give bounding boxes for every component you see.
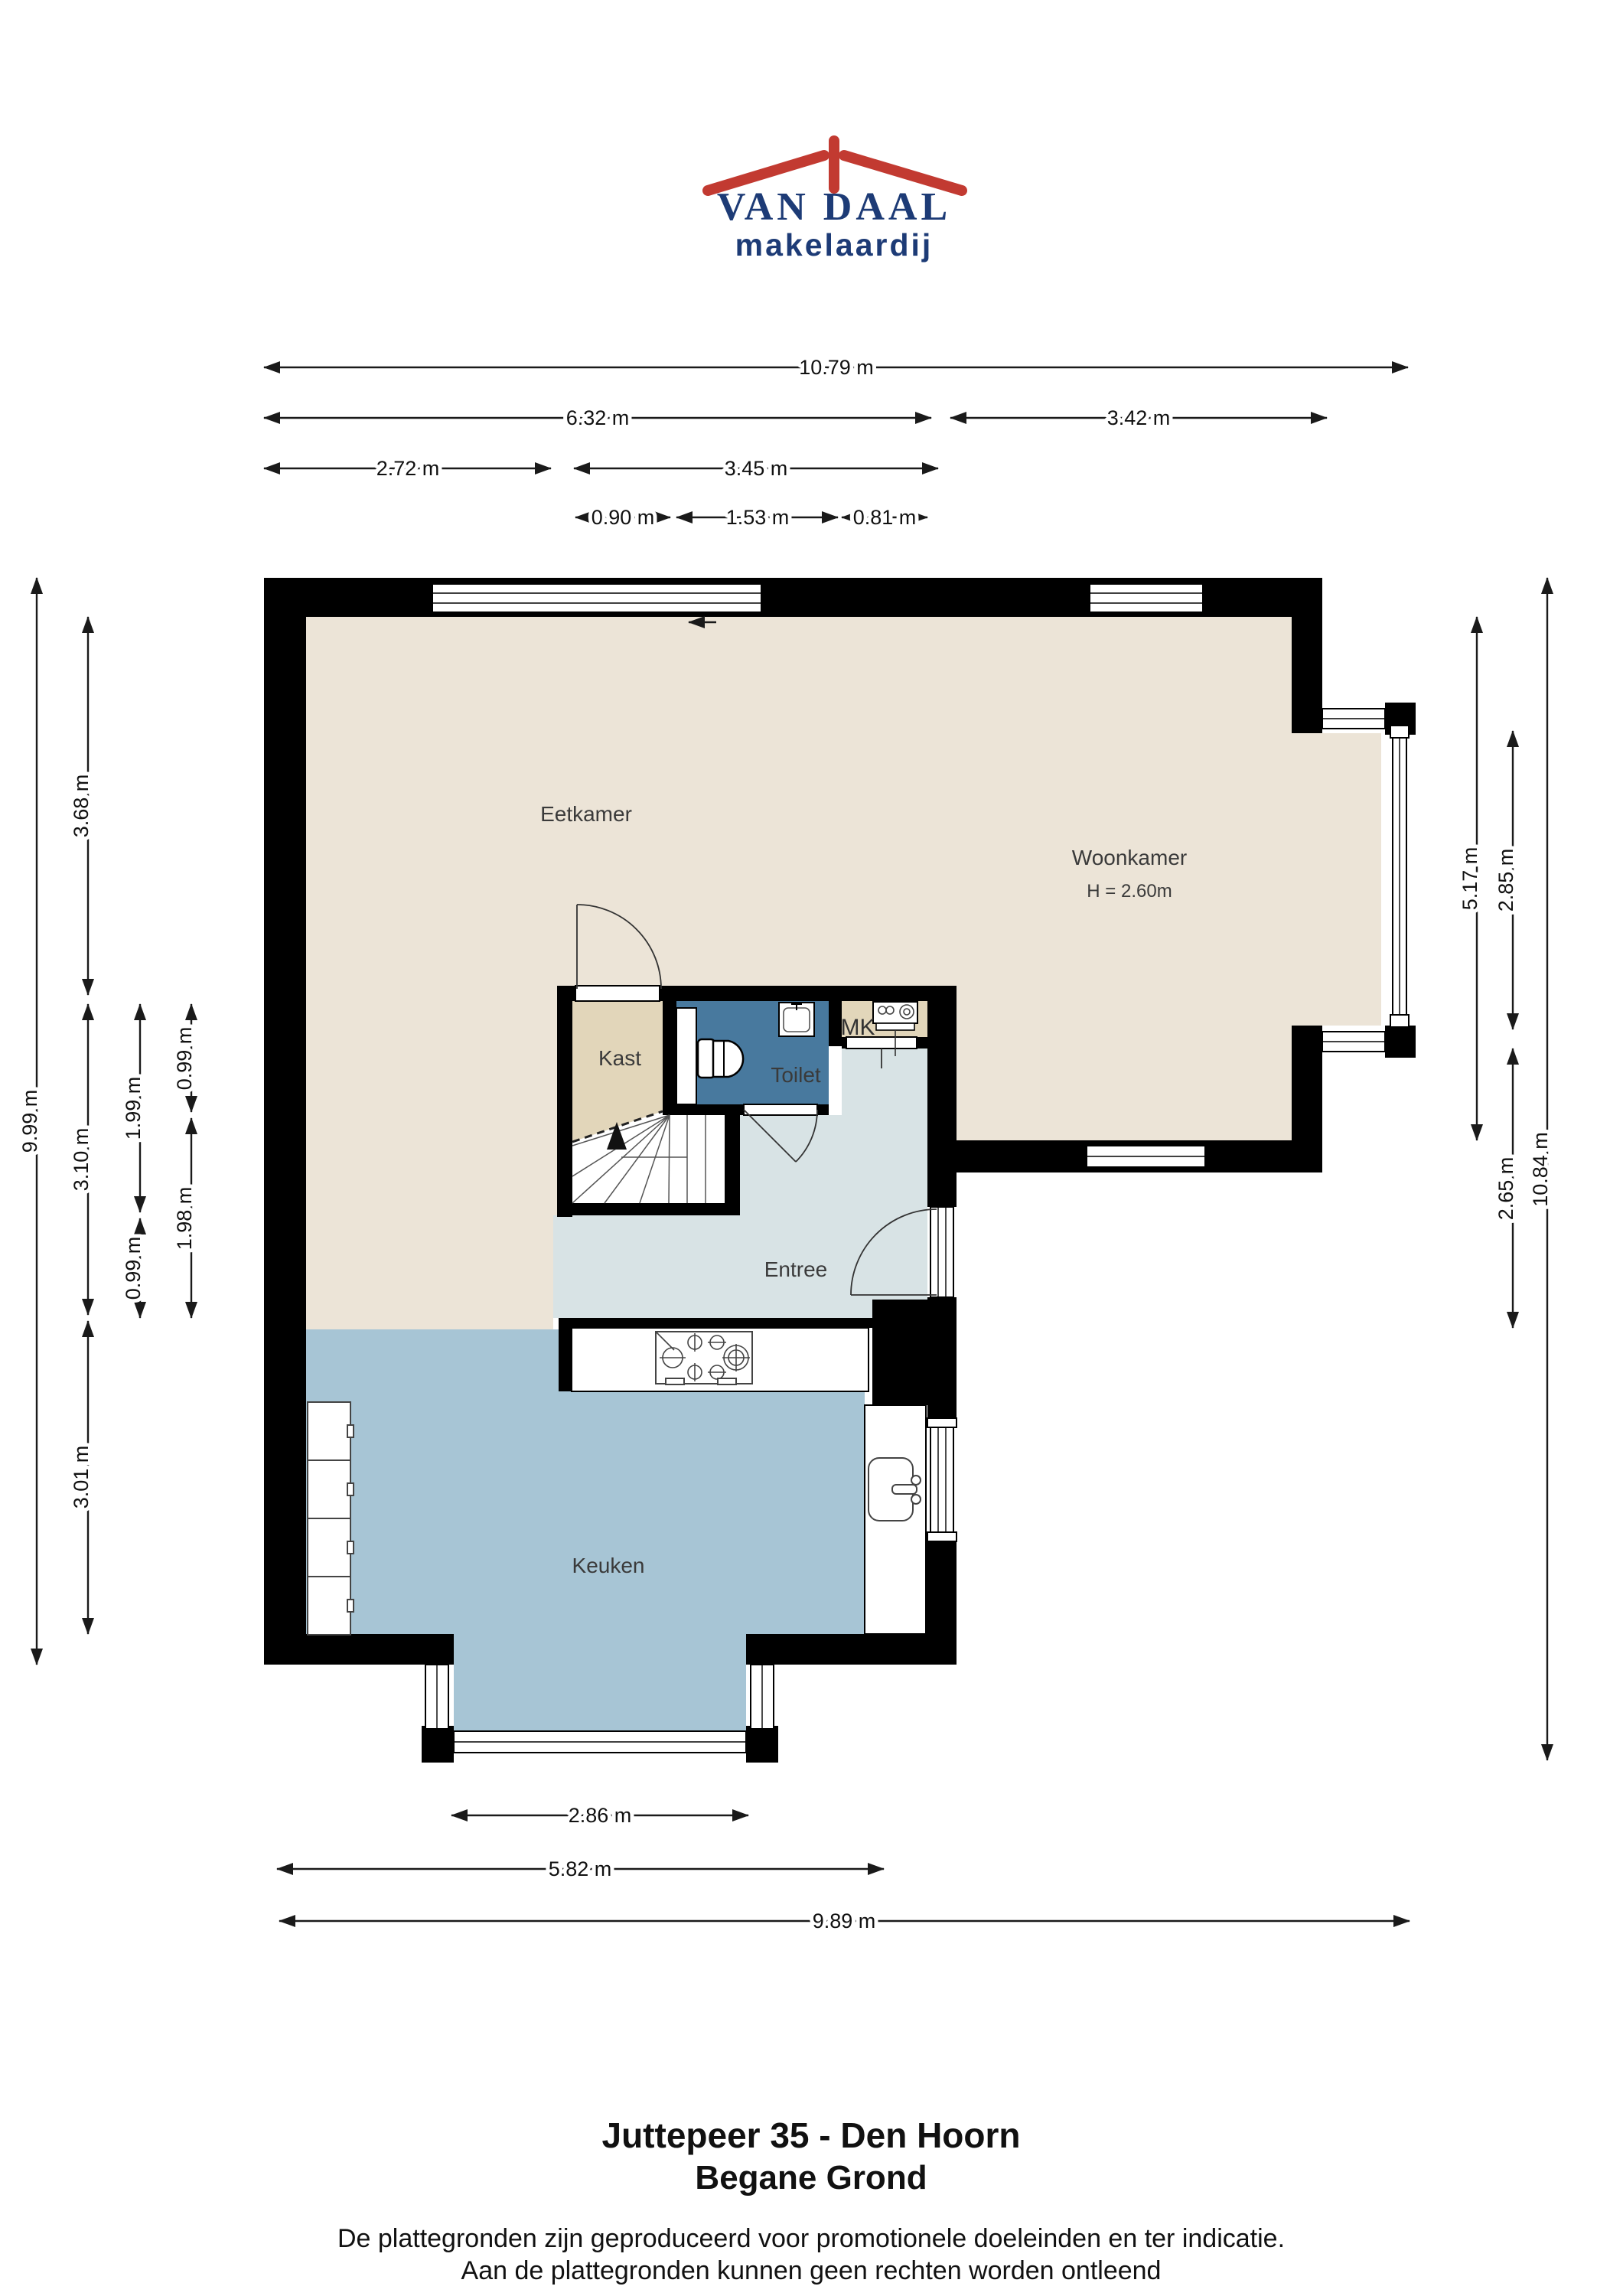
- agency-logo: VAN DAAL makelaardij: [708, 141, 962, 263]
- bay-side-window: [1390, 726, 1409, 1027]
- svg-text:3.45 m: 3.45 m: [725, 457, 788, 480]
- dim-bottom-2-86: 2.86 m: [451, 1804, 748, 1827]
- label-keuken: Keuken: [572, 1554, 645, 1577]
- svg-text:3.01 m: 3.01 m: [70, 1446, 93, 1509]
- kitchen-bay-left-window: [425, 1665, 448, 1729]
- svg-text:3.10 m: 3.10 m: [70, 1128, 93, 1192]
- stove-icon: [656, 1332, 752, 1384]
- dim-left-1-99: 1.99 m: [122, 1004, 145, 1212]
- logo-name: VAN DAAL: [717, 185, 951, 229]
- svg-text:2.85 m: 2.85 m: [1494, 849, 1517, 912]
- dim-width-3-45: 3.45 m: [574, 457, 938, 480]
- dim-left-1-98: 1.98 m: [173, 1118, 196, 1318]
- dim-bottom-9-89: 9.89 m: [279, 1910, 1410, 1932]
- disclaimer-line1: De plattegronden zijn geproduceerd voor …: [337, 2224, 1285, 2253]
- dimensions-top: 10.79 m 6.32 m 3.42 m 2.72 m 3.45 m 0.90…: [264, 356, 1408, 529]
- label-eetkamer: Eetkamer: [540, 802, 632, 826]
- svg-text:0.81 m: 0.81 m: [853, 506, 917, 529]
- dim-right-2-85: 2.85 m: [1494, 731, 1517, 1029]
- svg-text:1.98 m: 1.98 m: [173, 1187, 196, 1251]
- dimensions-bottom: 2.86 m 5.82 m 9.89 m: [277, 1804, 1410, 1932]
- dim-width-0-81: 0.81 m: [842, 506, 927, 529]
- closet-toilet-panel: [676, 1008, 696, 1104]
- logo-subtitle: makelaardij: [735, 227, 934, 263]
- dim-right-5-17: 5.17 m: [1458, 617, 1481, 1140]
- dim-width-0-90: 0.90 m: [575, 506, 670, 529]
- floor-title: Begane Grond: [695, 2159, 927, 2197]
- caption-block: Juttepeer 35 - Den Hoorn Begane Grond De…: [337, 2115, 1285, 2285]
- living-top-window: [1090, 584, 1203, 612]
- svg-text:0.99 m: 0.99 m: [173, 1027, 196, 1091]
- svg-text:5.82 m: 5.82 m: [549, 1857, 612, 1880]
- dim-left-0-99-lower: 0.99 m: [122, 1218, 145, 1318]
- dim-left-3-68: 3.68 m: [70, 617, 93, 995]
- svg-text:2.65 m: 2.65 m: [1494, 1157, 1517, 1221]
- dim-width-1-53: 1.53 m: [676, 506, 838, 529]
- label-woonkamer-height: H = 2.60m: [1087, 881, 1172, 902]
- svg-text:10.79 m: 10.79 m: [799, 356, 874, 379]
- dimensions-left: 9.99 m 3.68 m 3.10 m 3.01 m 1.99 m 0.99 …: [18, 578, 196, 1665]
- address-title: Juttepeer 35 - Den Hoorn: [602, 2115, 1021, 2155]
- svg-text:9.99 m: 9.99 m: [18, 1090, 41, 1153]
- dim-height-total-right: 10.84 m: [1529, 578, 1552, 1760]
- living-bottom-window: [1087, 1146, 1205, 1167]
- svg-text:0.90 m: 0.90 m: [592, 506, 655, 529]
- svg-text:6.32 m: 6.32 m: [566, 406, 630, 429]
- label-toilet: Toilet: [771, 1063, 821, 1087]
- kitchen-cabinets: [308, 1402, 354, 1635]
- kitchen-east-window: [927, 1418, 957, 1541]
- disclaimer-line2: Aan de plattegronden kunnen geen rechten…: [461, 2256, 1162, 2285]
- floorplan-svg: VAN DAAL makelaardij: [0, 0, 1623, 2296]
- svg-text:3.68 m: 3.68 m: [70, 775, 93, 838]
- dim-height-total-left: 9.99 m: [18, 578, 41, 1665]
- svg-text:10.84 m: 10.84 m: [1529, 1132, 1552, 1207]
- svg-text:3.42 m: 3.42 m: [1107, 406, 1171, 429]
- dim-width-right-section: 3.42 m: [950, 406, 1327, 429]
- kitchen-bay-bottom-window: [454, 1731, 746, 1753]
- dim-left-0-99-upper: 0.99 m: [173, 1004, 196, 1112]
- logo-roof-icon: [708, 141, 962, 191]
- dim-right-2-65: 2.65 m: [1494, 1049, 1517, 1328]
- label-meterkast: MK: [841, 1015, 875, 1040]
- floorplan-page: VAN DAAL makelaardij: [0, 0, 1623, 2296]
- dining-top-window: [432, 584, 761, 612]
- bay-top-window: [1322, 709, 1385, 729]
- svg-text:0.99 m: 0.99 m: [122, 1237, 145, 1300]
- svg-text:9.89 m: 9.89 m: [813, 1910, 876, 1932]
- bay-bottom-window: [1322, 1032, 1385, 1052]
- toilet-sink-icon: [779, 1003, 814, 1036]
- label-kast: Kast: [598, 1046, 641, 1070]
- label-entree: Entree: [764, 1257, 828, 1281]
- toilet-bowl-icon: [698, 1039, 743, 1078]
- dimensions-right: 5.17 m 2.85 m 2.65 m 10.84 m: [1458, 578, 1552, 1760]
- svg-text:2.86 m: 2.86 m: [569, 1804, 632, 1827]
- dim-left-3-01: 3.01 m: [70, 1321, 93, 1634]
- kitchen-sink-icon: [869, 1458, 921, 1521]
- dim-width-2-72: 2.72 m: [264, 457, 551, 480]
- dim-left-3-10: 3.10 m: [70, 1004, 93, 1315]
- label-woonkamer: Woonkamer: [1072, 846, 1187, 869]
- svg-text:2.72 m: 2.72 m: [376, 457, 440, 480]
- svg-text:1.53 m: 1.53 m: [726, 506, 790, 529]
- dim-width-total: 10.79 m: [264, 356, 1408, 379]
- kitchen-bay-right-window: [751, 1665, 774, 1729]
- svg-text:1.99 m: 1.99 m: [122, 1077, 145, 1140]
- room-floors: [306, 617, 1381, 1731]
- dim-width-left-section: 6.32 m: [264, 406, 931, 429]
- svg-text:5.17 m: 5.17 m: [1458, 847, 1481, 911]
- dim-bottom-5-82: 5.82 m: [277, 1857, 884, 1880]
